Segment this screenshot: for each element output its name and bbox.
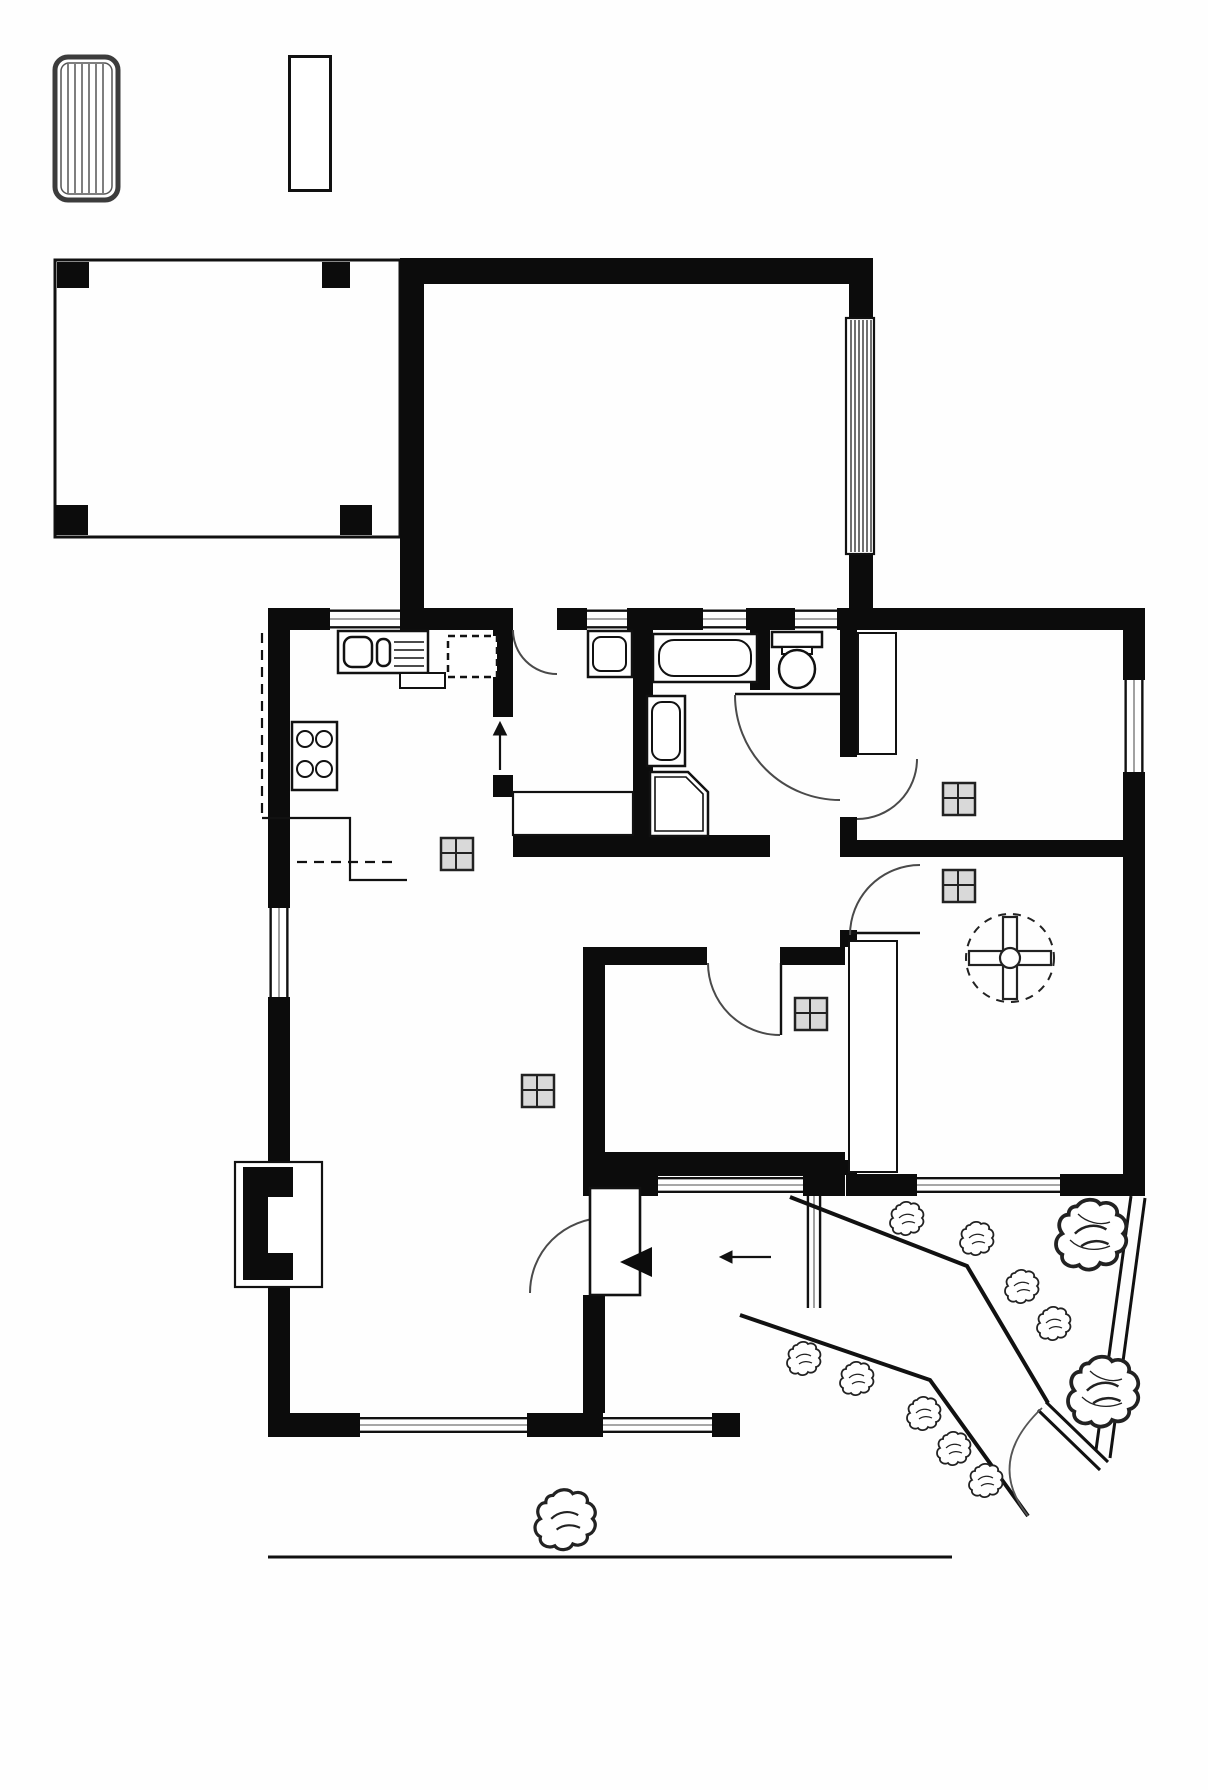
tree-icon [1068, 1357, 1138, 1427]
pergola-structure [55, 260, 400, 537]
shed-box [288, 55, 332, 192]
roller-door-icon [846, 318, 874, 554]
patio-door [590, 1188, 652, 1295]
heater-icon [235, 1162, 322, 1287]
robe-bed1-box [848, 940, 898, 1173]
garden-lines [268, 1196, 1145, 1557]
vent-icon [441, 838, 473, 870]
toilet-cistern-icon [772, 632, 822, 647]
step-leader [720, 1251, 771, 1263]
fridge-icon [448, 636, 497, 677]
door-arc [708, 963, 780, 1035]
shrub-icon [969, 1464, 1002, 1497]
window [587, 608, 627, 630]
shrub-icon [890, 1202, 923, 1235]
vent-icon [943, 783, 975, 815]
windows [268, 608, 1145, 1434]
window [330, 608, 400, 630]
sink-basin-icon [377, 639, 390, 666]
patio-screen [806, 1196, 822, 1308]
door-arc [850, 865, 920, 935]
shrub-icon [960, 1222, 993, 1255]
window [917, 1176, 1060, 1194]
ceiling-fan-icon [966, 914, 1054, 1002]
window [795, 608, 837, 630]
shrub-icon [1005, 1270, 1038, 1303]
patio-screen [603, 1416, 712, 1434]
floor-plan [0, 0, 1208, 1790]
patio-screen [658, 1176, 803, 1194]
cooktop-icon [292, 722, 337, 790]
window [360, 1416, 527, 1434]
dishwasher-icon [400, 673, 445, 688]
robe-bed3-box [857, 632, 897, 755]
shrub-icon [535, 1490, 595, 1550]
window [703, 608, 746, 630]
vent-icon [522, 1075, 554, 1107]
kitchen-fixtures [292, 631, 497, 790]
doorway-arrow-icon [494, 722, 507, 770]
heater-label-box [314, 1160, 348, 1310]
door-arc [735, 695, 840, 800]
toilet-bowl-icon [779, 650, 815, 688]
door-arc [857, 759, 917, 819]
door-arc [513, 630, 557, 674]
shrub-icon [1037, 1307, 1070, 1340]
tree-icon [1056, 1200, 1126, 1270]
shrub-icon [907, 1397, 940, 1430]
built-in-cupboard-icon [513, 792, 633, 835]
shrub-icon [840, 1362, 873, 1395]
shrub-icon [787, 1342, 820, 1375]
vent-icon [795, 998, 827, 1030]
floor-plan-drawing [0, 0, 1208, 1790]
window [1123, 680, 1145, 772]
shrub-icon [937, 1432, 970, 1465]
clothesline-icon [55, 57, 118, 200]
sink-basin-icon [344, 637, 372, 667]
window [268, 908, 290, 997]
vent-icon [943, 870, 975, 902]
